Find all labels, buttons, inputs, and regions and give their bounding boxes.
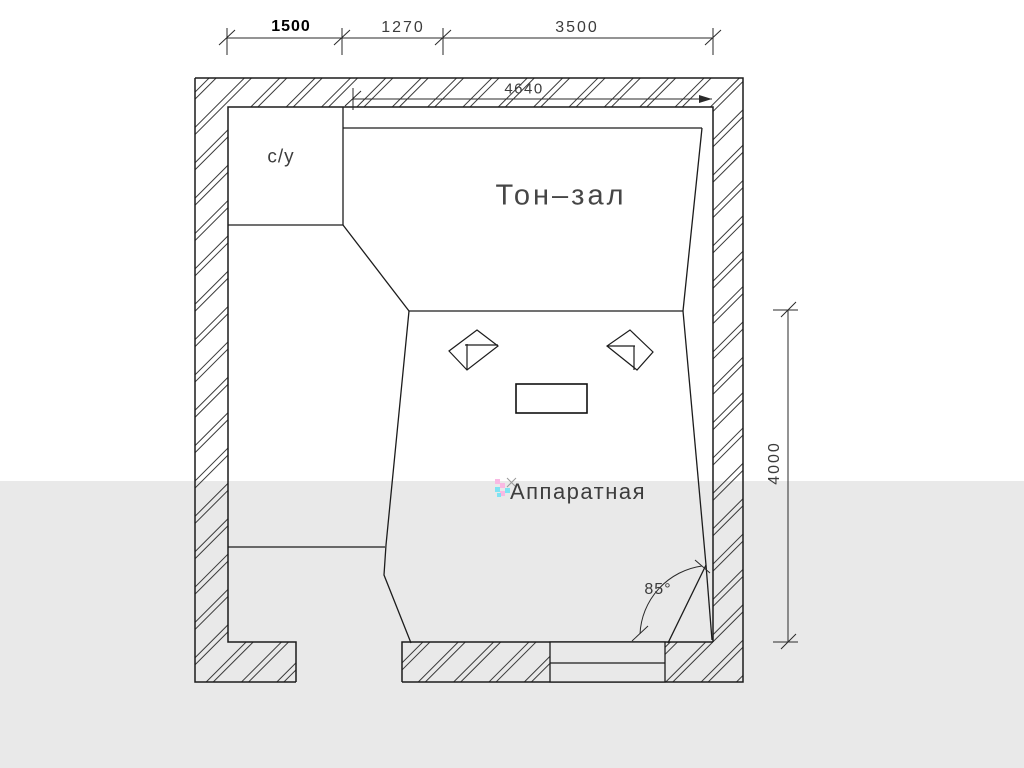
speaker-icon-left [449,330,498,370]
room-label-tone-hall: Тон–зал [495,182,626,211]
dimension-label-4640: 4640 [504,82,543,97]
door-angle-arc [632,560,710,641]
room-label-wc: с/у [267,148,294,167]
dimension-label-1500: 1500 [271,19,311,35]
angle-label-85: 85° [644,582,671,598]
dimension-label-1270: 1270 [381,20,425,36]
floor-plan-linework [0,0,1024,768]
room-label-control-room: Аппаратная [510,481,646,503]
mixing-desk [516,384,587,413]
bottom-wall-niche [550,642,665,682]
room-partitions [228,107,712,643]
dimension-label-4000: 4000 [767,441,783,485]
floor-plan-page: 1500 1270 3500 4640 4000 85° с/у Тон–зал… [0,0,1024,768]
speaker-icon-right [607,330,653,370]
dimension-label-3500: 3500 [555,20,599,36]
